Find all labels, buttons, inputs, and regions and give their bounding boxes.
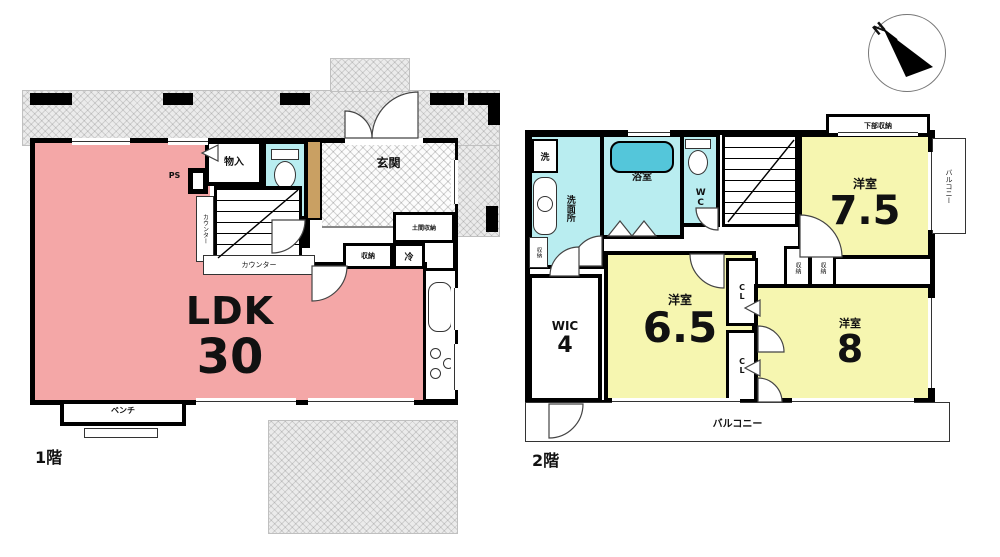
- bathroom-text: 浴室: [632, 173, 652, 184]
- stove-burner: [430, 348, 441, 359]
- closet-bottom-label: CL: [738, 357, 747, 375]
- toilet-bowl-2f: [688, 150, 708, 175]
- window: [72, 138, 130, 145]
- floor2-label: 2階: [532, 450, 592, 472]
- window: [451, 160, 458, 204]
- window: [838, 129, 918, 136]
- washroom-text: 洗面所: [564, 195, 573, 222]
- storage-top-label: 物入: [224, 158, 244, 169]
- pipe-space-text: PS: [169, 172, 181, 180]
- window: [628, 129, 670, 136]
- bedroom1-size: 7.5: [830, 190, 901, 232]
- entrance-door-gap: [345, 138, 423, 145]
- washroom-sink-bowl: [537, 196, 553, 212]
- canopy-corner-v: [488, 93, 500, 125]
- canopy-pillar: [30, 93, 72, 105]
- window: [928, 152, 935, 230]
- canopy-hatch-bump: [330, 58, 410, 92]
- wall-hall-entrance: [300, 218, 310, 248]
- canopy-pillar: [163, 93, 193, 105]
- balcony-side-box: バルコニー: [932, 138, 966, 234]
- window: [451, 288, 458, 330]
- toilet-label-2f: WC: [680, 176, 720, 220]
- terrace-hatch: [268, 420, 458, 534]
- floor1-label: 1階: [35, 447, 95, 469]
- entrance-text: 玄関: [376, 157, 400, 170]
- window: [928, 298, 935, 388]
- washer-box: 洗: [532, 139, 558, 173]
- bedroom1-label: 洋室 7.5: [810, 160, 920, 250]
- canopy-pillar: [430, 93, 464, 105]
- entrance-label: 玄関: [322, 154, 455, 172]
- toilet-bowl-1f: [274, 161, 296, 189]
- balcony-bottom-label: バルコニー: [713, 415, 763, 430]
- washroom-storage-box: 収納: [529, 237, 548, 268]
- canopy-mark-right: [486, 206, 498, 232]
- bench-seat: [84, 428, 158, 438]
- storage-small-label: 収納: [361, 251, 375, 261]
- bedroom2-size: 6.5: [643, 306, 717, 350]
- bedroom3-size: 8: [837, 330, 863, 370]
- bedroom2-label: 洋室 6.5: [620, 272, 740, 372]
- bedroom3-label: 洋室 8: [800, 296, 900, 392]
- kitchen-sink: [428, 282, 452, 332]
- window: [612, 398, 740, 405]
- canopy-pillar: [280, 93, 310, 105]
- bathtub: [610, 141, 674, 173]
- ldk-name: LDK: [186, 292, 274, 332]
- washroom-label: 洗面所: [556, 172, 582, 244]
- window: [451, 344, 458, 390]
- balcony-side-label: バルコニー: [944, 169, 954, 204]
- floor-plan-canvas: 玄関 物入 PS WC カウンター カウンター 収納 冷 土間収納: [0, 0, 1000, 557]
- washroom-storage-label: 収納: [535, 247, 543, 258]
- storage-top-room: 物入: [205, 140, 263, 186]
- toilet-tank-2f: [685, 139, 711, 149]
- counter-label: カウンター: [242, 260, 277, 270]
- wic-size: 4: [557, 333, 572, 358]
- bench-label: ベンチ: [111, 405, 135, 416]
- toilet-tank-1f: [271, 149, 299, 160]
- counter-vertical-box: カウンター: [196, 196, 214, 262]
- wic-name: WIC: [552, 319, 579, 333]
- floor2-text: 2階: [532, 453, 559, 470]
- stove-burner: [430, 368, 441, 379]
- window: [168, 138, 208, 145]
- floor1-text: 1階: [35, 450, 62, 467]
- fridge-label: 冷: [404, 250, 413, 263]
- counter-vertical-label: カウンター: [201, 214, 210, 244]
- counter-box: カウンター: [203, 255, 315, 275]
- pipe-space-label: PS: [162, 170, 187, 182]
- ldk-size: 30: [197, 332, 264, 382]
- window: [792, 398, 914, 405]
- toilet-text-2f: WC: [695, 188, 704, 208]
- pipe-space-box: [188, 168, 208, 194]
- stairs-1f: [214, 186, 302, 264]
- stairs-2f: [722, 133, 798, 227]
- closet-top-label: CL: [738, 283, 747, 301]
- wic-room: WIC 4: [528, 274, 602, 402]
- window: [308, 398, 414, 405]
- fridge-box: 冷: [393, 243, 425, 269]
- ldk-label: LDK 30: [150, 276, 310, 398]
- storage-small-box: 収納: [343, 243, 393, 269]
- entrance-storage-label: 土間収納: [412, 223, 436, 232]
- entrance-storage-box: 土間収納: [393, 212, 455, 243]
- shoe-cabinet: [306, 140, 322, 220]
- window: [196, 398, 296, 405]
- storage-a-label: 収納: [793, 262, 802, 274]
- bench-box: ベンチ: [60, 400, 186, 426]
- storage-b-label: 収納: [818, 262, 827, 274]
- bathroom-label: 浴室: [610, 170, 674, 186]
- balcony-bottom-box: バルコニー: [525, 402, 950, 442]
- washer-label: 洗: [540, 150, 549, 163]
